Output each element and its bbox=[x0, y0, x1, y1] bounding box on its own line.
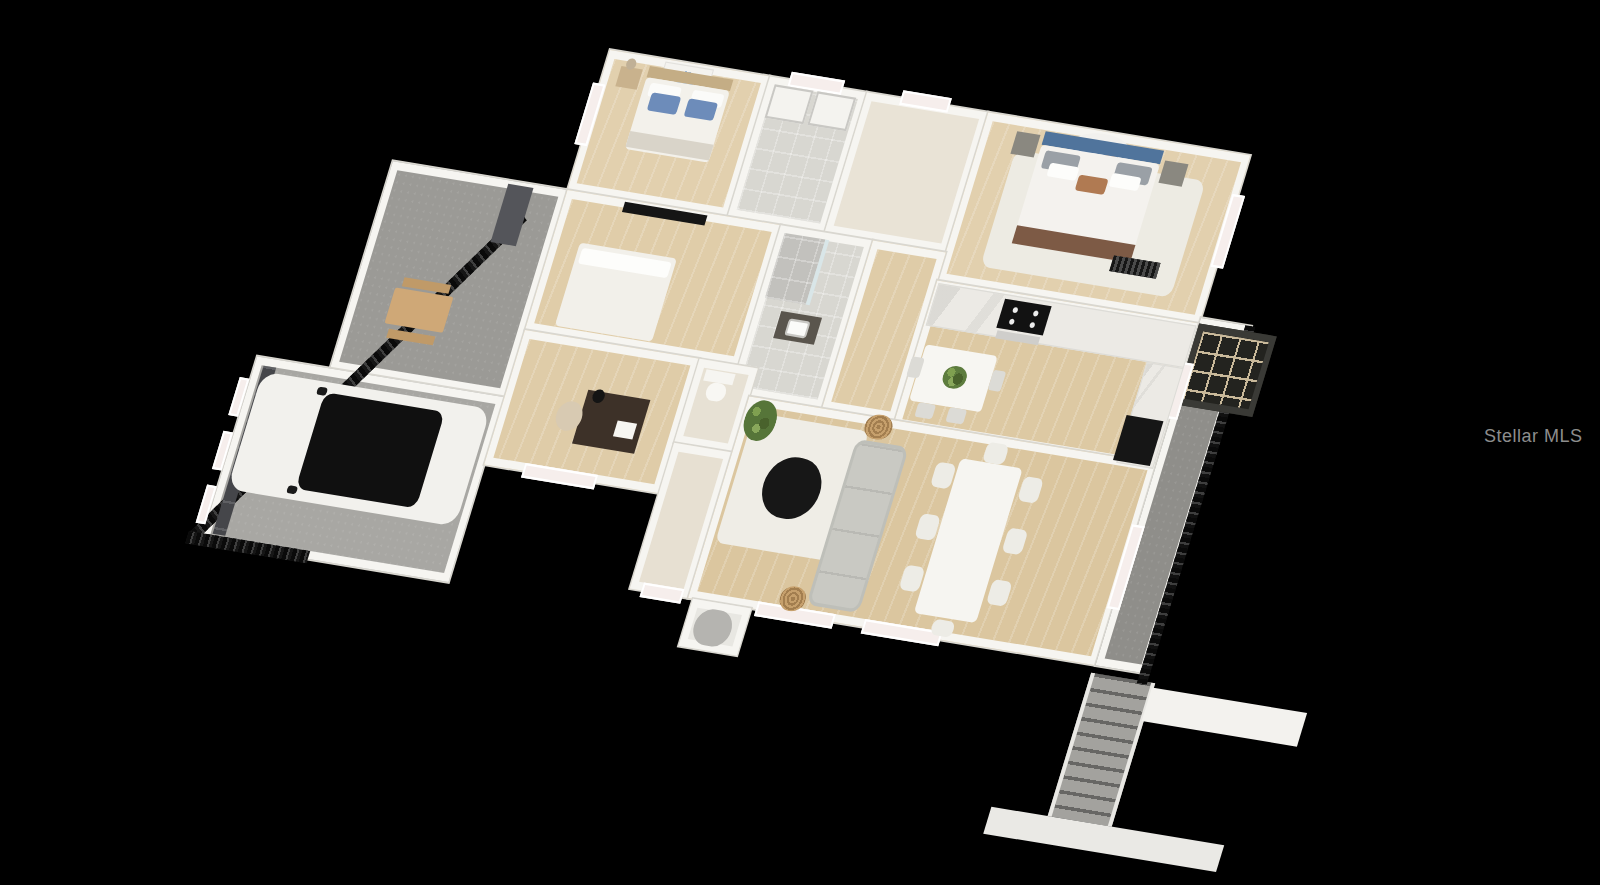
roof-beam-right bbox=[1142, 687, 1307, 746]
stair-well bbox=[1048, 673, 1156, 827]
watermark-stellar-mls: Stellar MLS bbox=[1484, 426, 1583, 447]
floor-plan-scene: Stellar MLS bbox=[0, 0, 1600, 885]
